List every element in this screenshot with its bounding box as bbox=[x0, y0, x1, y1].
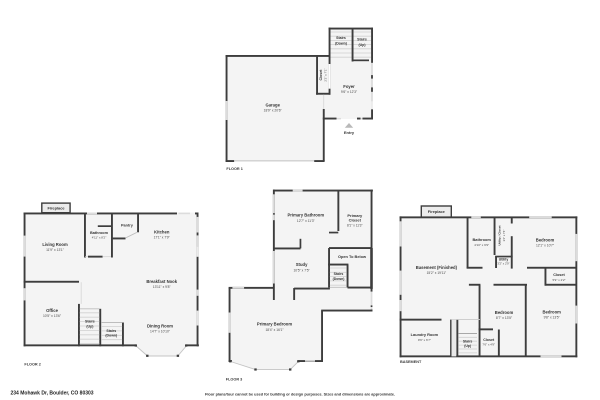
svg-text:Bedroom: Bedroom bbox=[543, 310, 562, 315]
svg-text:Stairs: Stairs bbox=[336, 36, 346, 40]
svg-text:Office: Office bbox=[46, 308, 59, 313]
svg-text:BASEMENT: BASEMENT bbox=[400, 360, 422, 364]
svg-text:10'5" x 7'5": 10'5" x 7'5" bbox=[293, 268, 310, 272]
svg-text:(Up): (Up) bbox=[86, 324, 93, 328]
svg-text:Primary Bedroom: Primary Bedroom bbox=[257, 322, 292, 327]
svg-text:17'1" x 7'9": 17'1" x 7'9" bbox=[154, 235, 171, 239]
svg-text:2'2" x 7'1": 2'2" x 7'1" bbox=[323, 68, 327, 81]
svg-text:Stairs: Stairs bbox=[106, 329, 116, 333]
svg-text:Open To Below: Open To Below bbox=[338, 254, 367, 259]
svg-text:9'6" x 6'7": 9'6" x 6'7" bbox=[418, 338, 431, 342]
svg-text:Stairs: Stairs bbox=[334, 272, 344, 276]
svg-text:12'7" x 11'3": 12'7" x 11'3" bbox=[297, 219, 316, 223]
svg-text:10'5" x 13'6": 10'5" x 13'6" bbox=[43, 314, 62, 318]
svg-text:FLOOR 3: FLOOR 3 bbox=[226, 378, 242, 382]
svg-text:Foyer: Foyer bbox=[343, 84, 355, 89]
svg-text:Basement (Finished): Basement (Finished) bbox=[416, 265, 458, 270]
svg-text:4'11" x 8'2": 4'11" x 8'2" bbox=[92, 236, 107, 240]
svg-text:18'4" x 16'1": 18'4" x 16'1" bbox=[265, 328, 284, 332]
svg-text:(Down): (Down) bbox=[105, 334, 117, 338]
svg-text:14'7" x 10'10": 14'7" x 10'10" bbox=[150, 330, 171, 334]
svg-text:FLOOR 1: FLOOR 1 bbox=[226, 167, 242, 171]
svg-text:Fireplace: Fireplace bbox=[428, 209, 446, 214]
svg-text:Stairs: Stairs bbox=[85, 320, 95, 324]
svg-text:Garage: Garage bbox=[265, 103, 280, 108]
svg-text:15'2" x 19'11": 15'2" x 19'11" bbox=[427, 271, 447, 275]
svg-text:234 Mohawk Dr, Boulder, CO 803: 234 Mohawk Dr, Boulder, CO 80303 bbox=[11, 390, 94, 396]
svg-text:Bathroom: Bathroom bbox=[473, 237, 492, 242]
svg-text:Pantry: Pantry bbox=[121, 223, 134, 227]
svg-text:8'1" x 11'3": 8'1" x 11'3" bbox=[347, 224, 362, 228]
svg-text:Bedroom: Bedroom bbox=[536, 238, 555, 243]
svg-text:Utility / Closet: Utility / Closet bbox=[497, 225, 501, 245]
svg-text:7'6" x 4'9": 7'6" x 4'9" bbox=[482, 343, 495, 347]
svg-text:Closet: Closet bbox=[553, 273, 565, 277]
svg-text:12'1" x 10'7": 12'1" x 10'7" bbox=[536, 244, 555, 248]
svg-text:5'9" x 2'2": 5'9" x 2'2" bbox=[552, 278, 565, 282]
svg-text:Breakfast Nook: Breakfast Nook bbox=[146, 279, 177, 284]
svg-text:9'8" x 13'5": 9'8" x 13'5" bbox=[544, 316, 561, 320]
svg-text:Stairs: Stairs bbox=[463, 339, 473, 343]
svg-text:8'7" x 13'5": 8'7" x 13'5" bbox=[496, 316, 513, 320]
svg-text:Laundry Room: Laundry Room bbox=[411, 332, 439, 337]
svg-text:Bathroom: Bathroom bbox=[90, 231, 109, 235]
svg-text:Study: Study bbox=[296, 262, 308, 267]
svg-text:Floor plans/tour cannot be use: Floor plans/tour cannot be used for buil… bbox=[205, 393, 395, 397]
svg-text:3'2" x 2'9": 3'2" x 2'9" bbox=[497, 262, 509, 266]
svg-text:4'10" x 9'9": 4'10" x 9'9" bbox=[474, 243, 489, 247]
svg-text:FLOOR 2: FLOOR 2 bbox=[24, 363, 40, 367]
svg-text:Primary Bathroom: Primary Bathroom bbox=[288, 213, 325, 218]
svg-text:Stairs: Stairs bbox=[357, 38, 367, 42]
svg-text:18'9" x 20'6": 18'9" x 20'6" bbox=[264, 108, 283, 112]
svg-text:9'6" x 12'3": 9'6" x 12'3" bbox=[341, 90, 358, 94]
svg-text:Bedroom: Bedroom bbox=[495, 310, 514, 315]
svg-text:Kitchen: Kitchen bbox=[154, 230, 170, 235]
svg-text:Fireplace: Fireplace bbox=[47, 206, 65, 211]
svg-text:Closet: Closet bbox=[483, 338, 495, 342]
svg-text:(Down): (Down) bbox=[333, 277, 345, 281]
svg-text:Living Room: Living Room bbox=[42, 242, 68, 247]
svg-text:Entry: Entry bbox=[344, 130, 355, 135]
svg-text:13'11" x 9'8": 13'11" x 9'8" bbox=[153, 285, 172, 289]
svg-text:11'9" x 13'1": 11'9" x 13'1" bbox=[46, 248, 65, 252]
svg-text:3'2" x 7'4": 3'2" x 7'4" bbox=[502, 230, 506, 242]
svg-text:Closet: Closet bbox=[319, 69, 323, 81]
svg-text:(Down): (Down) bbox=[335, 42, 347, 46]
svg-text:(Up): (Up) bbox=[464, 344, 471, 348]
svg-text:(Up): (Up) bbox=[359, 43, 366, 47]
svg-text:Closet: Closet bbox=[349, 218, 362, 223]
svg-text:Dining Room: Dining Room bbox=[147, 324, 173, 329]
